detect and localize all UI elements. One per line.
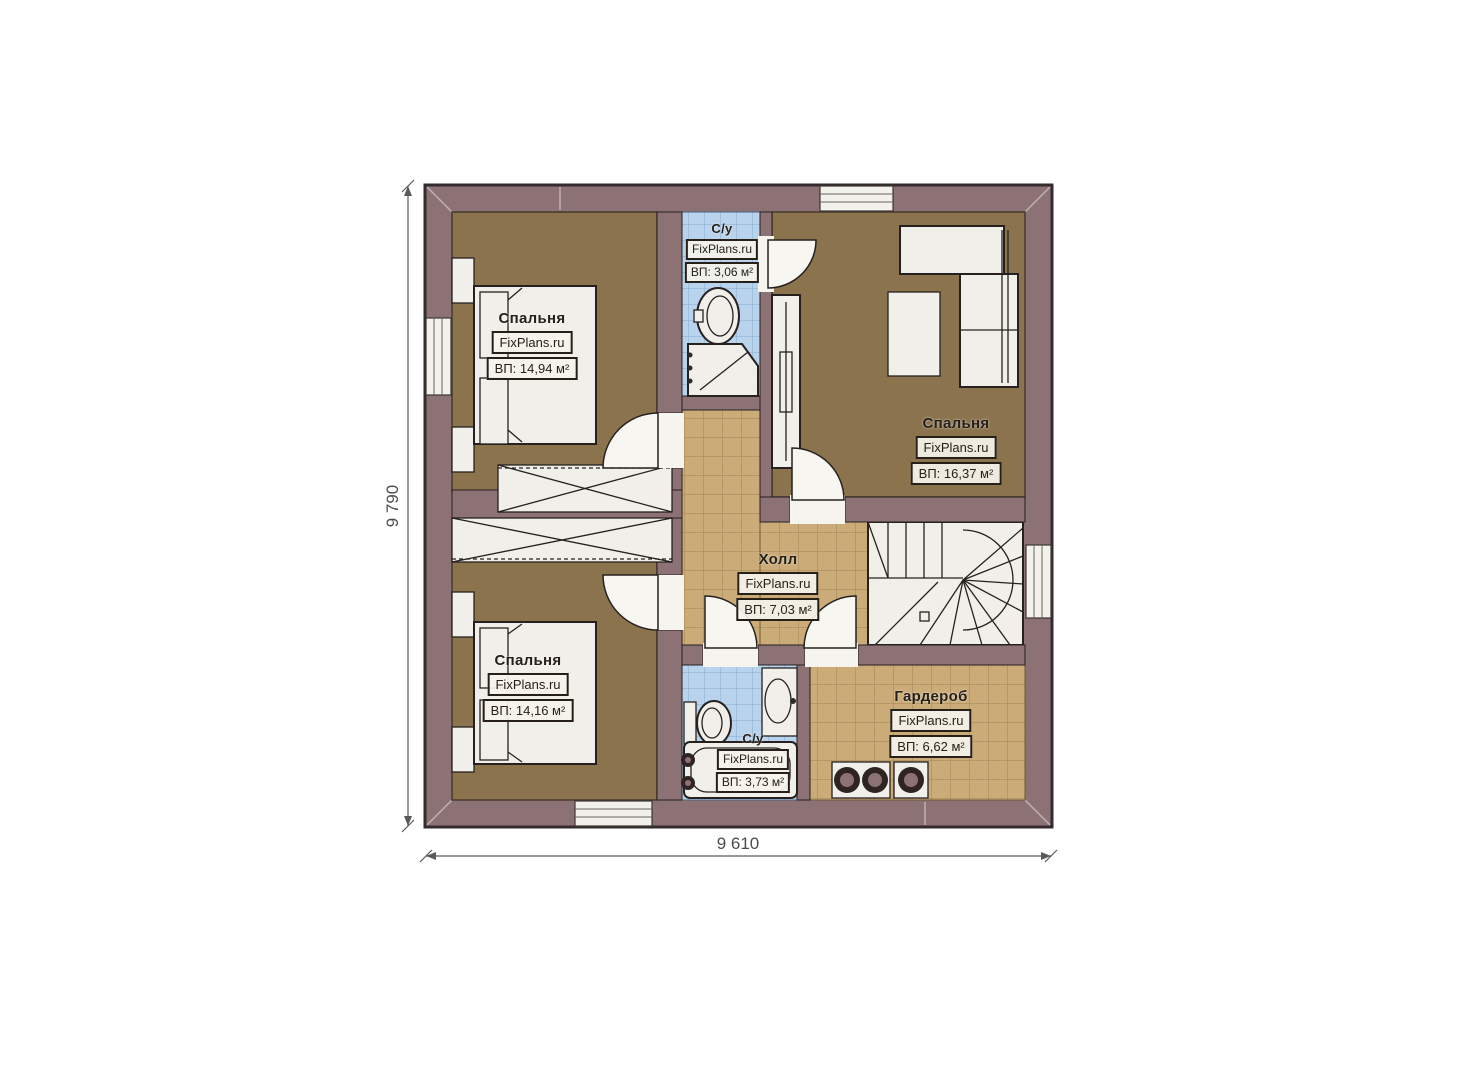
- room-label-hall: Холл FixPlans.ru ВП: 7,03 м²: [736, 551, 819, 621]
- sliding-wardrobe: [772, 295, 800, 468]
- room-area: ВП: 16,37 м²: [911, 462, 1002, 485]
- stairs-area: [868, 522, 1023, 645]
- brand-watermark: FixPlans.ru: [487, 673, 568, 696]
- window-right: [1026, 545, 1051, 618]
- window-top: [820, 186, 893, 211]
- dimension-left: 9 790: [383, 180, 414, 832]
- window-bottom: [575, 801, 652, 826]
- room-label-wardrobe: Гардероб FixPlans.ru ВП: 6,62 м²: [889, 688, 972, 758]
- brand-watermark: FixPlans.ru: [890, 709, 971, 732]
- room-name: Холл: [759, 551, 798, 568]
- room-area: ВП: 14,16 м²: [483, 699, 574, 722]
- floor-plan-page: 9 790 9 610 Спальня FixPlans.ru ВП: 14,9…: [0, 0, 1473, 1080]
- floor-plan-drawing: 9 790 9 610: [0, 0, 1473, 1080]
- nightstand: [452, 258, 474, 303]
- dimension-bottom: 9 610: [420, 834, 1057, 862]
- brand-watermark: FixPlans.ru: [686, 239, 758, 260]
- brand-watermark: FixPlans.ru: [717, 749, 789, 770]
- room-label-bath-bottom: С/у FixPlans.ru ВП: 3,73 м²: [716, 731, 790, 793]
- room-name: С/у: [742, 731, 763, 746]
- pillow: [480, 378, 508, 444]
- room-area: ВП: 3,73 м²: [716, 772, 790, 793]
- nightstand: [452, 427, 474, 472]
- room-name: С/у: [711, 221, 732, 236]
- shower: [688, 344, 759, 396]
- sink: [762, 668, 797, 736]
- nightstand: [452, 727, 474, 772]
- brand-watermark: FixPlans.ru: [737, 572, 818, 595]
- room-name: Спальня: [499, 310, 566, 327]
- room-name: Спальня: [495, 652, 562, 669]
- room-area: ВП: 7,03 м²: [736, 598, 819, 621]
- room-name: Спальня: [923, 415, 990, 432]
- room-area: ВП: 14,94 м²: [487, 357, 578, 380]
- dimension-height-label: 9 790: [383, 485, 402, 528]
- window-left: [426, 318, 451, 395]
- rug: [888, 292, 940, 376]
- dimension-width-label: 9 610: [717, 834, 760, 853]
- room-label-bedroom-tr: Спальня FixPlans.ru ВП: 16,37 м²: [911, 415, 1002, 485]
- room-area: ВП: 3,06 м²: [685, 262, 759, 283]
- brand-watermark: FixPlans.ru: [491, 331, 572, 354]
- room-area: ВП: 6,62 м²: [889, 735, 972, 758]
- room-name: Гардероб: [894, 688, 967, 705]
- brand-watermark: FixPlans.ru: [915, 436, 996, 459]
- room-label-bedroom-bl: Спальня FixPlans.ru ВП: 14,16 м²: [483, 652, 574, 722]
- room-label-bedroom-tl: Спальня FixPlans.ru ВП: 14,94 м²: [487, 310, 578, 380]
- washing-machines: [832, 762, 928, 798]
- nightstand: [452, 592, 474, 637]
- room-label-bath-top: С/у FixPlans.ru ВП: 3,06 м²: [685, 221, 759, 283]
